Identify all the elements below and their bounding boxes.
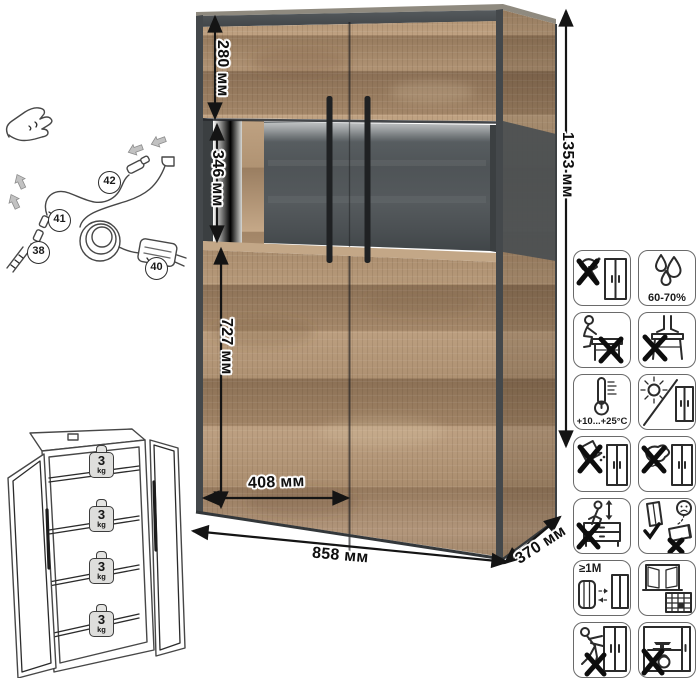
heat-source-distance-label: ≥1M	[579, 563, 630, 575]
care-icon-grid: 60-70%	[573, 250, 696, 678]
dimension-door-width: 408 мм	[248, 472, 305, 493]
no-sitting-icon	[573, 312, 631, 368]
no-spilling-liquids-icon	[573, 436, 631, 492]
no-wet-cleaning-icon	[638, 436, 696, 492]
dimension-bottom-section: 727 мм	[217, 318, 236, 375]
humidity-range-icon: 60-70%	[638, 250, 696, 306]
dimension-total-height: 1353 мм	[558, 132, 577, 198]
shelf-weight-1: 3 kg	[89, 445, 115, 479]
shelf-weight-4: 3 kg	[89, 604, 115, 638]
humidity-range-label: 60-70%	[639, 292, 695, 304]
part-badge-38: 38	[27, 241, 50, 264]
dimension-glass-section: 346 мм	[208, 150, 227, 207]
ventilate-room-icon	[638, 560, 696, 616]
temperature-range-icon: +10...+25°C	[573, 374, 631, 430]
no-dragging-icon	[573, 622, 631, 678]
no-standing-icon	[638, 312, 696, 368]
part-badge-40: 40	[145, 257, 168, 280]
part-badge-41: 41	[48, 209, 71, 232]
no-jumping-icon	[573, 498, 631, 554]
shelf-weight-3: 3 kg	[89, 551, 115, 585]
shelf-weight-2: 3 kg	[89, 499, 115, 533]
no-direct-sunlight-icon	[638, 374, 696, 430]
heat-source-distance-icon: ≥1M	[573, 560, 631, 616]
product-spec-sheet: 280 мм 346 мм 727 мм 408 мм 858 мм 370 м…	[0, 0, 700, 678]
cabinet-glass-section	[203, 118, 496, 252]
no-heavy-items-icon	[638, 622, 696, 678]
temperature-range-label: +10...+25°C	[574, 416, 630, 428]
cabinet-side-panel	[503, 10, 556, 559]
part-badge-42: 42	[98, 171, 121, 194]
carry-upright-icon	[638, 498, 696, 554]
dimension-top-section: 280 мм	[213, 40, 232, 97]
no-sharp-tools-icon	[573, 250, 631, 306]
